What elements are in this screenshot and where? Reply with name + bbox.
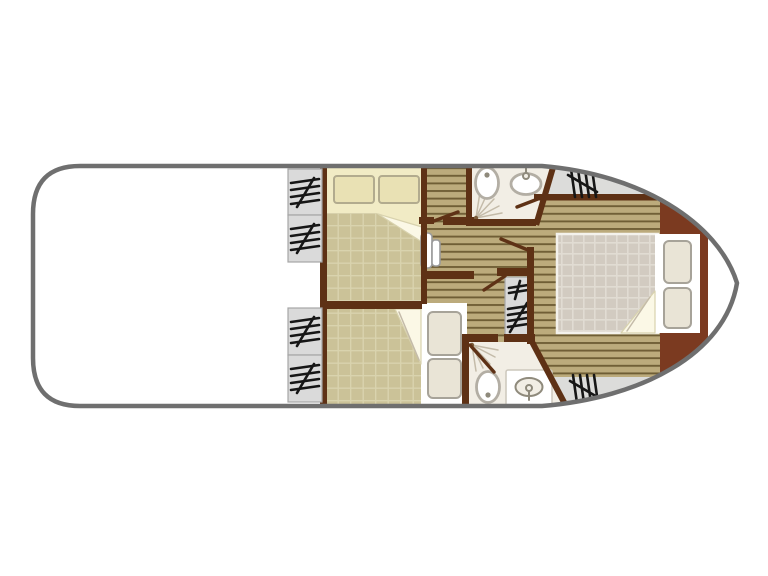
pillow bbox=[379, 176, 419, 203]
corridor-wall bbox=[421, 271, 474, 279]
bathroom-port-wall bbox=[466, 163, 472, 225]
toilet-icon bbox=[476, 168, 499, 199]
pillow bbox=[428, 359, 461, 398]
mid-cabin-wall bbox=[320, 301, 422, 309]
pillow bbox=[428, 312, 461, 355]
boat-floor-plan-page: Top-down floor plan of a canal cruiser h… bbox=[0, 0, 768, 576]
boat-floor-plan bbox=[0, 0, 768, 576]
bathroom-port-wall bbox=[466, 219, 536, 226]
cabin-corridor-wall bbox=[421, 164, 427, 304]
master-cabin-wall bbox=[534, 194, 665, 201]
pillow bbox=[664, 241, 691, 283]
pillow bbox=[334, 176, 374, 203]
toilet-icon bbox=[477, 372, 500, 403]
bathroom-starboard-wall bbox=[462, 340, 469, 406]
wall-segment bbox=[419, 217, 434, 224]
companionway-stairs bbox=[505, 277, 530, 336]
bathroom-starboard-wall bbox=[462, 334, 498, 342]
pillow bbox=[664, 288, 691, 328]
stairs-side-wall bbox=[527, 247, 534, 344]
master-bed bbox=[557, 234, 700, 333]
